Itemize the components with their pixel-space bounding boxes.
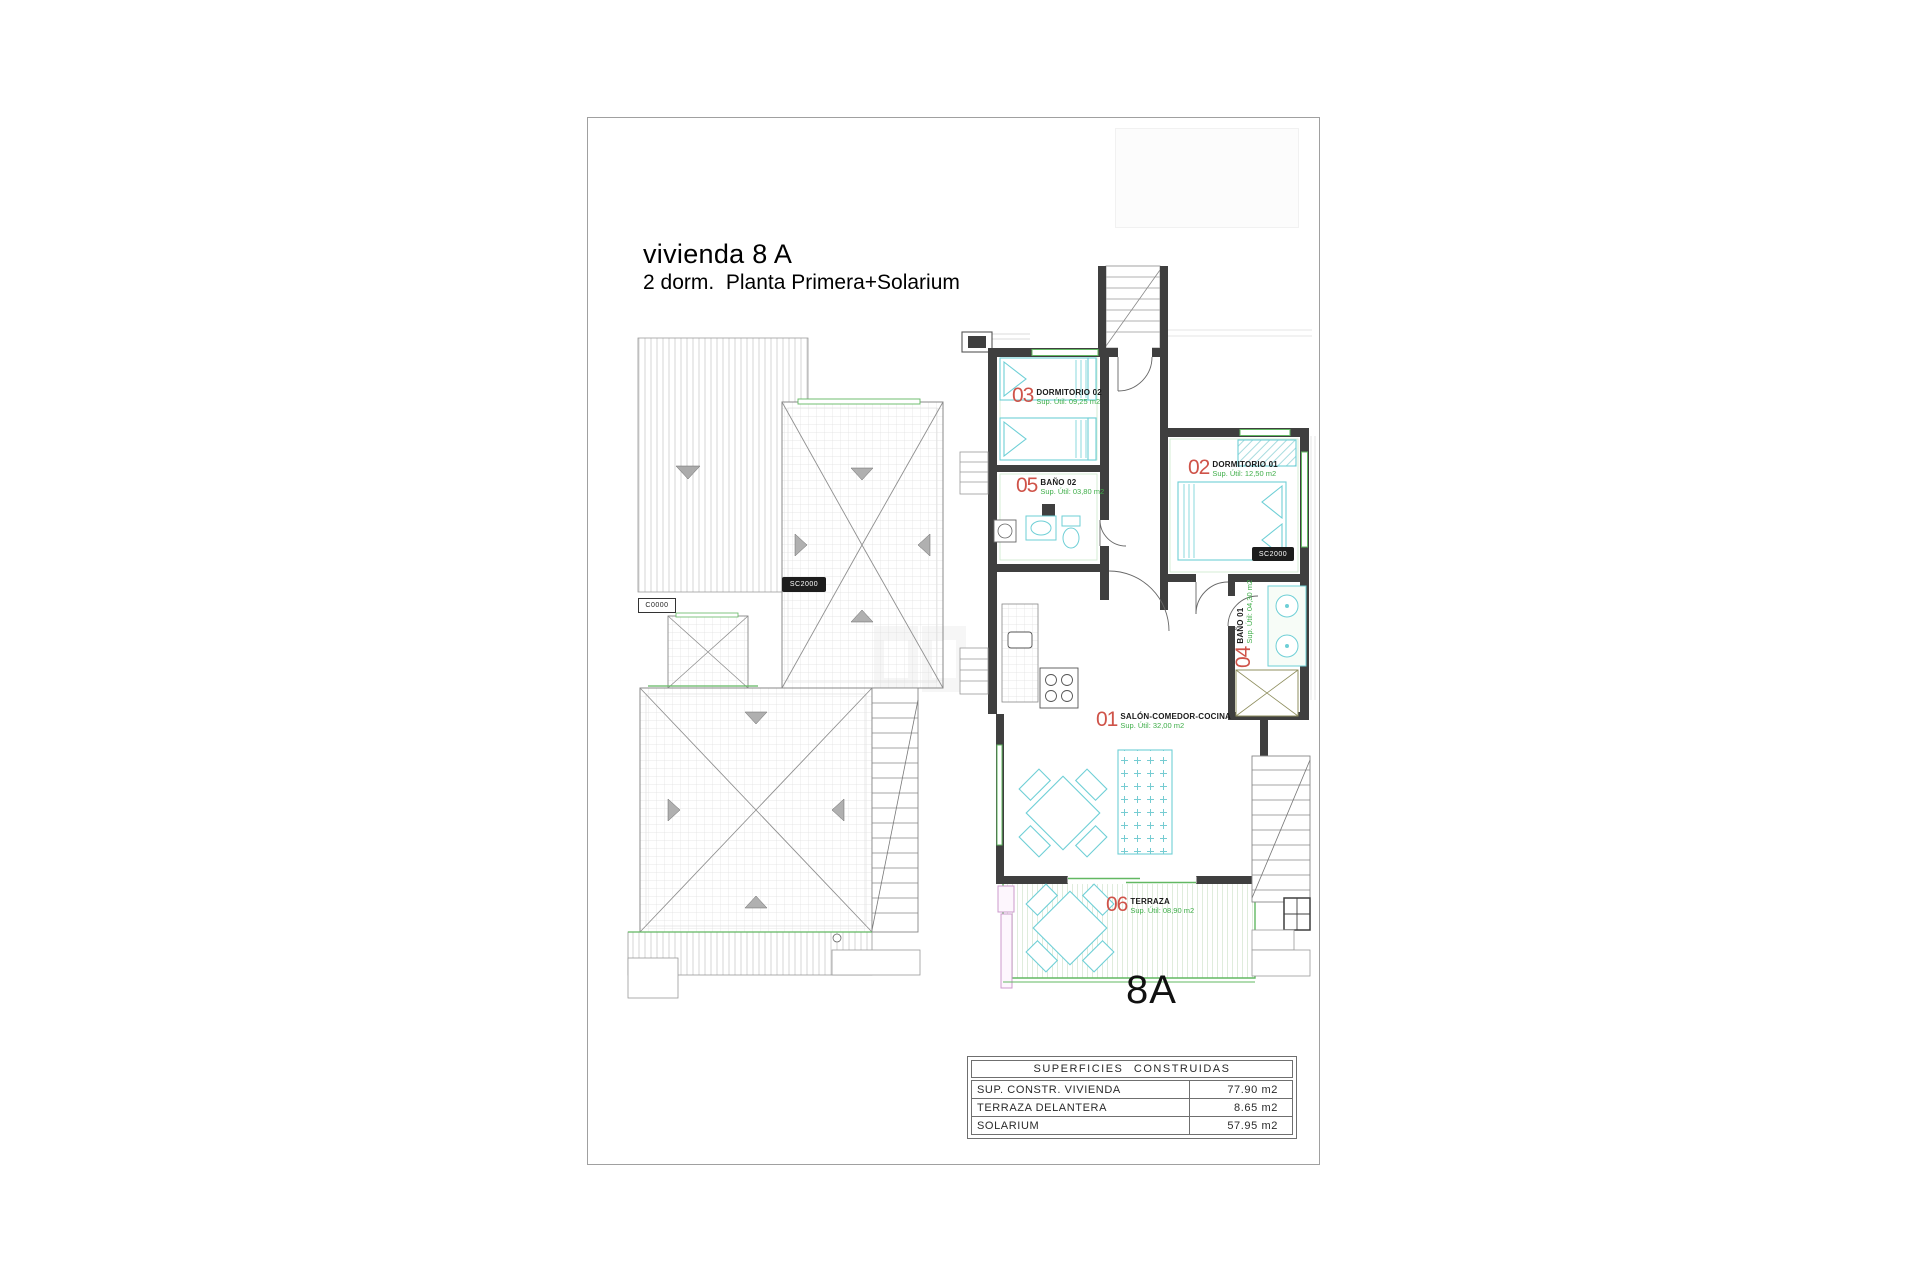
floor-plan-drawing [0,0,1920,1280]
room-number: 03 [1012,388,1033,404]
solarium-roof-plan [628,338,943,998]
room-area: Sup. Útil: 04,30 m2 [1245,580,1254,644]
row-value: 57.95 m2 [1189,1117,1292,1134]
room-label-dormitorio1: 02 DORMITORIO 01 Sup. Útil: 12,50 m2 [1188,460,1278,478]
room-name: DORMITORIO 01 [1212,460,1278,469]
room-number: 04 [1236,647,1252,668]
equipment-tag-roof-black: SC2000 [782,577,826,592]
side-landings [960,452,988,694]
areas-table-header: SUPERFICIES CONSTRUIDAS [971,1060,1293,1078]
room-area: Sup. Útil: 03,80 m2 [1040,487,1104,496]
kitchen-fixtures [1002,604,1078,708]
row-value: 77.90 m2 [1189,1081,1292,1098]
room-area: Sup. Útil: 08,90 m2 [1130,906,1194,915]
dormitorio2-furniture [1000,358,1096,460]
row-label: SUP. CONSTR. VIVIENDA [972,1084,1189,1096]
table-row: SOLARIUM 57.95 m2 [972,1116,1292,1134]
floor-plan-sheet: vivienda 8 A 2 dorm. Planta Primera+Sola… [0,0,1920,1280]
room-name: BAÑO 02 [1040,478,1104,487]
equipment-tag-indoor-black: SC2000 [1252,547,1294,561]
room-area: Sup. Útil: 09,25 m2 [1036,397,1102,406]
room-label-bano2: 05 BAÑO 02 Sup. Útil: 03,80 m2 [1016,478,1104,496]
unit-label: 8A [1126,968,1177,1013]
room-label-salon: 01 SALÓN-COMEDOR-COCINA Sup. Útil: 32,00… [1096,712,1231,730]
table-row: SUP. CONSTR. VIVIENDA 77.90 m2 [972,1081,1292,1098]
room-number: 01 [1096,712,1117,728]
areas-table: SUPERFICIES CONSTRUIDAS SUP. CONSTR. VIV… [967,1056,1297,1139]
exterior-stairs [1252,756,1310,976]
row-label: TERRAZA DELANTERA [972,1102,1189,1114]
row-value: 8.65 m2 [1189,1099,1292,1116]
solarium-stairs [872,688,918,932]
room-name: TERRAZA [1130,897,1194,906]
room-number: 06 [1106,897,1127,913]
room-name: DORMITORIO 02 [1036,388,1102,397]
room-label-dormitorio2: 03 DORMITORIO 02 Sup. Útil: 09,25 m2 [1012,388,1102,406]
room-name: SALÓN-COMEDOR-COCINA [1120,712,1231,721]
room-name: BAÑO 01 [1236,580,1245,644]
areas-table-rows: SUP. CONSTR. VIVIENDA 77.90 m2 TERRAZA D… [971,1080,1293,1135]
equipment-tag-roof-white: C0000 [638,598,676,613]
common-stairwell [1098,266,1168,350]
room-area: Sup. Útil: 32,00 m2 [1120,721,1231,730]
room-label-bano1: 04 BAÑO 01 Sup. Útil: 04,30 m2 [1236,580,1254,668]
first-floor-plan [960,266,1315,996]
room-area: Sup. Útil: 12,50 m2 [1212,469,1278,478]
room-label-terraza: 06 TERRAZA Sup. Útil: 08,90 m2 [1106,897,1194,915]
table-row: TERRAZA DELANTERA 8.65 m2 [972,1098,1292,1116]
salon-furniture [995,745,1172,881]
room-number: 05 [1016,478,1037,494]
bano2-fixtures [994,504,1080,548]
row-label: SOLARIUM [972,1120,1189,1132]
room-number: 02 [1188,460,1209,476]
